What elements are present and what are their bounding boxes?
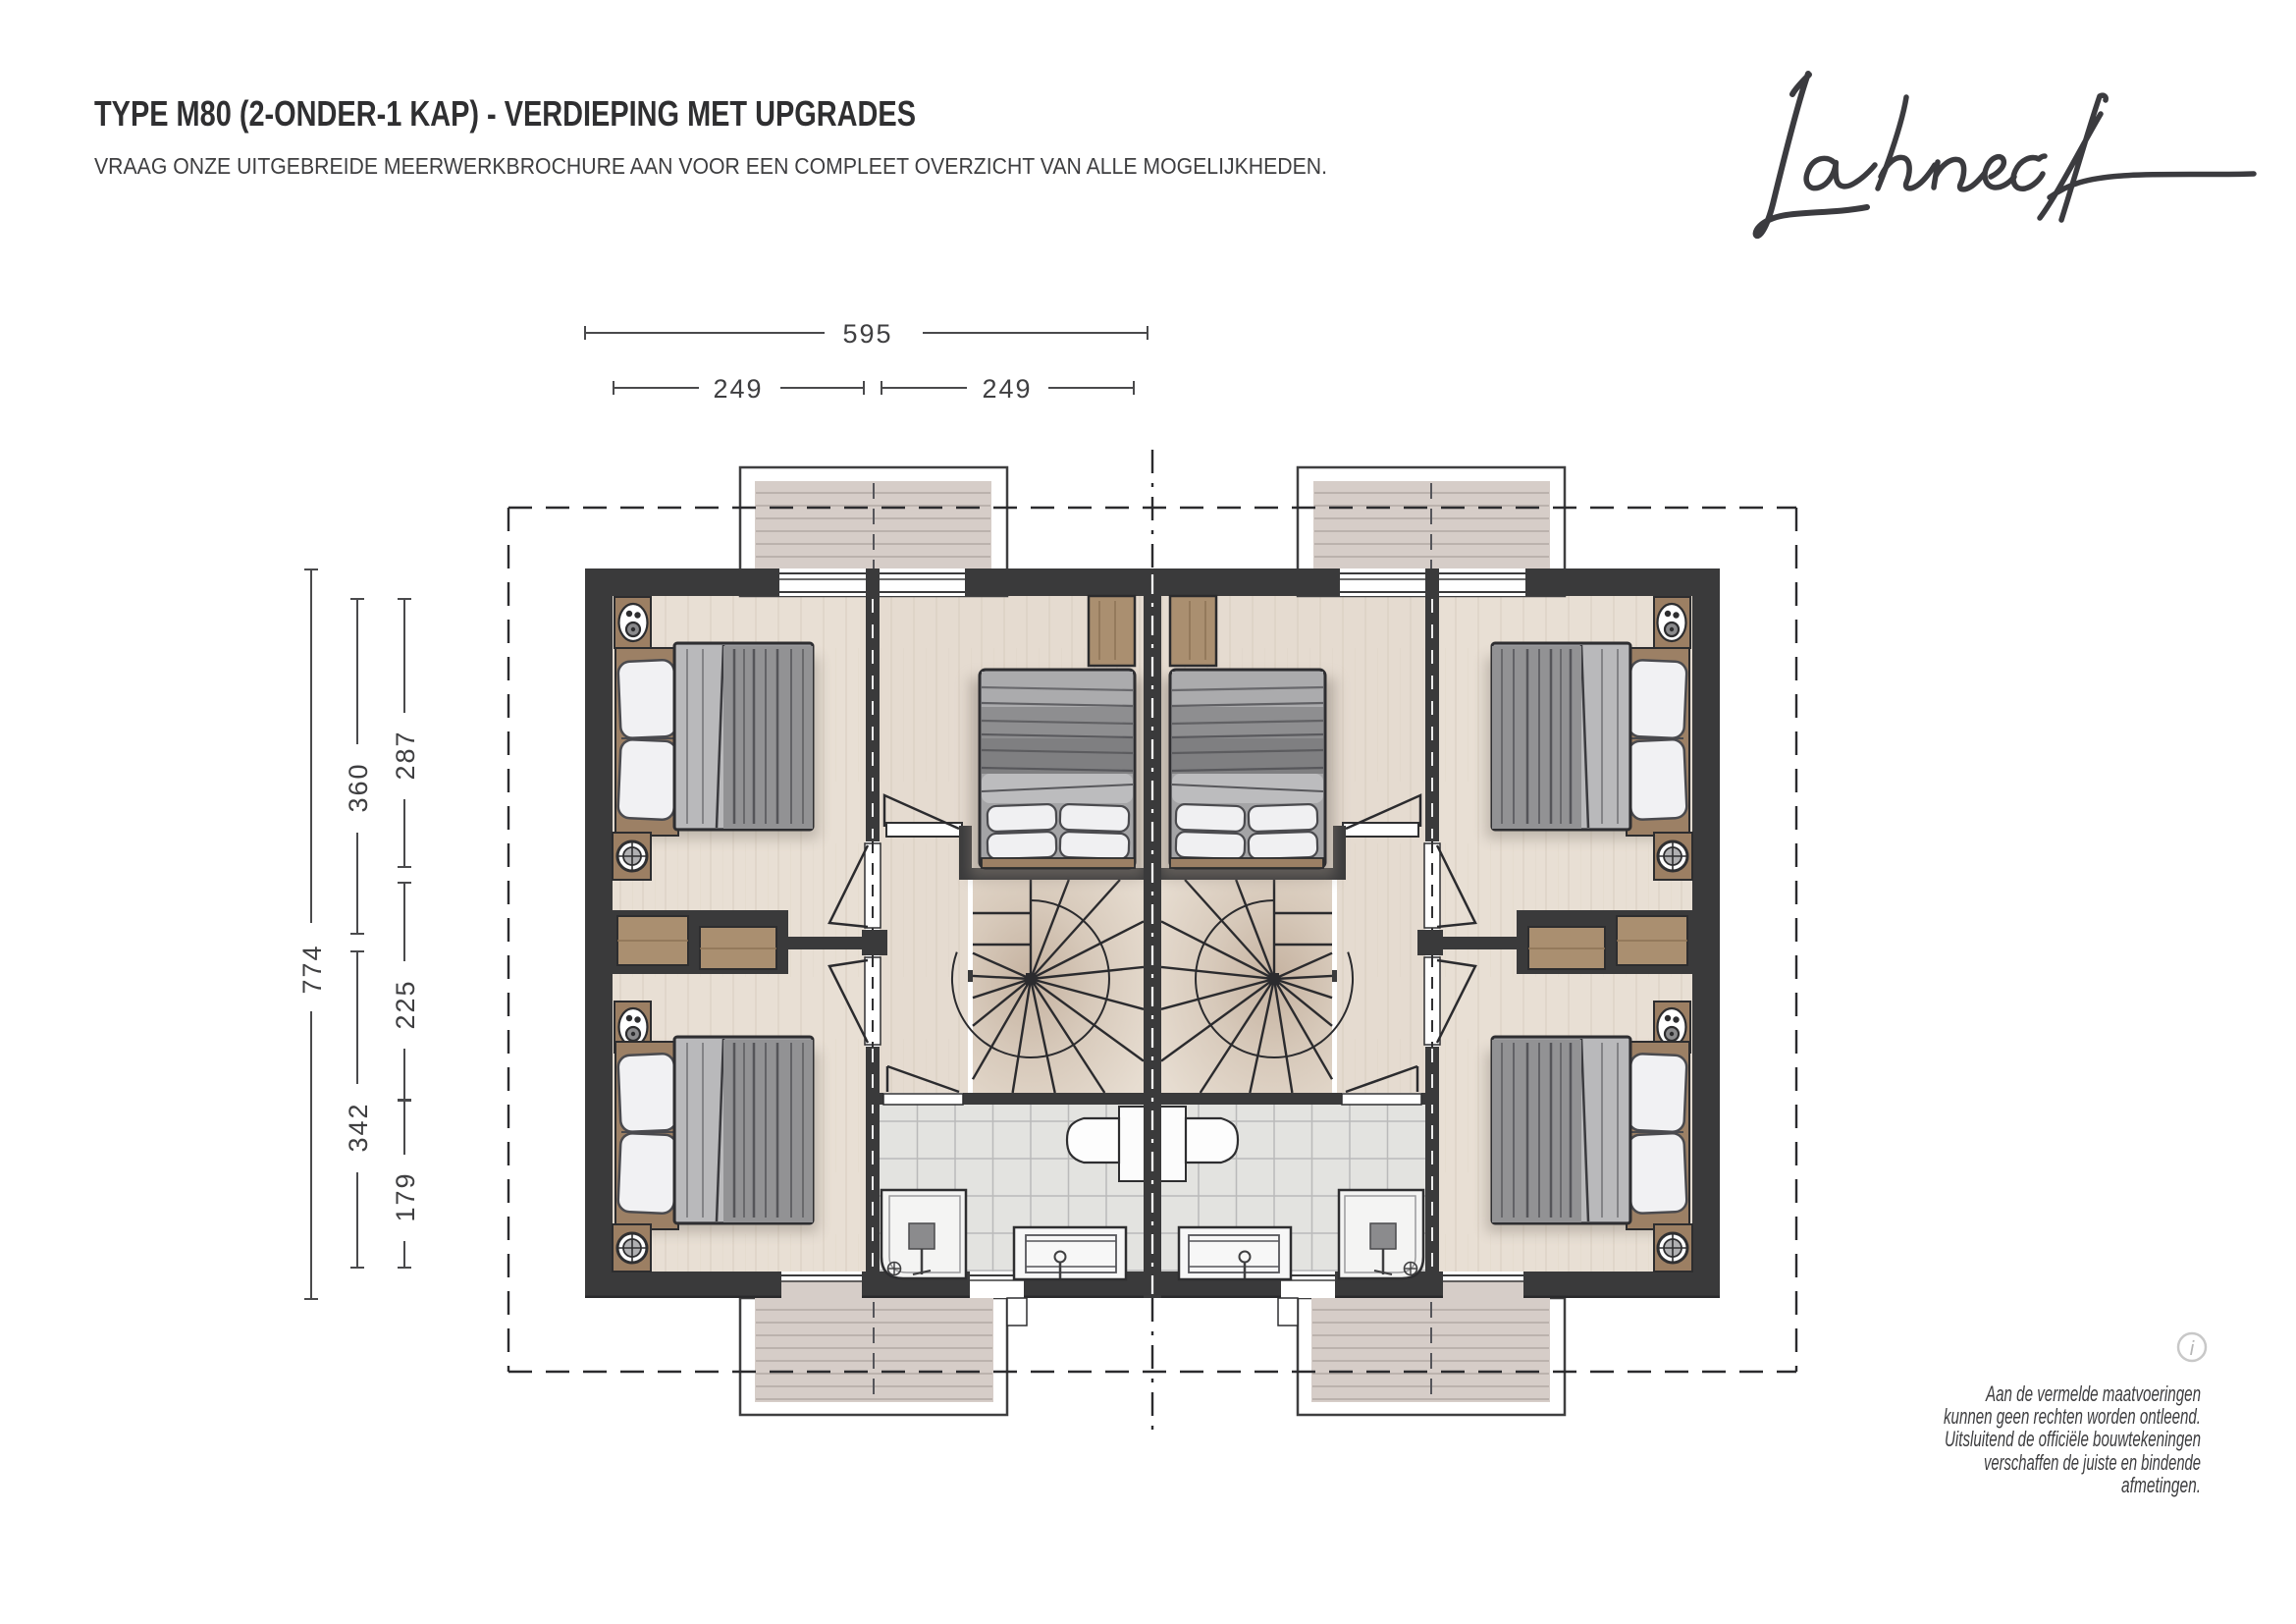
svg-text:Uitsluitend de officiële bouwt: Uitsluitend de officiële bouwtekeningen xyxy=(1945,1427,2201,1451)
svg-text:kunnen geen rechten worden ont: kunnen geen rechten worden ontleend. xyxy=(1944,1404,2201,1429)
svg-text:342: 342 xyxy=(344,1102,373,1152)
svg-text:595: 595 xyxy=(842,319,892,349)
svg-text:249: 249 xyxy=(982,374,1032,404)
svg-text:249: 249 xyxy=(713,374,763,404)
svg-text:179: 179 xyxy=(391,1171,420,1221)
svg-text:verschaffen de juiste en binde: verschaffen de juiste en bindende xyxy=(1984,1450,2201,1475)
svg-text:TYPE M80 (2-ONDER-1 KAP) - VER: TYPE M80 (2-ONDER-1 KAP) - VERDIEPING ME… xyxy=(94,93,916,134)
svg-text:VRAAG ONZE UITGEBREIDE MEERWER: VRAAG ONZE UITGEBREIDE MEERWERKBROCHURE … xyxy=(94,153,1327,179)
svg-text:774: 774 xyxy=(297,944,327,994)
svg-text:287: 287 xyxy=(391,730,420,780)
svg-text:Aan de vermelde maatvoeringen: Aan de vermelde maatvoeringen xyxy=(1985,1381,2201,1406)
svg-text:360: 360 xyxy=(344,762,373,812)
svg-text:225: 225 xyxy=(391,979,420,1029)
svg-text:i: i xyxy=(2190,1338,2195,1360)
svg-text:afmetingen.: afmetingen. xyxy=(2121,1473,2201,1497)
